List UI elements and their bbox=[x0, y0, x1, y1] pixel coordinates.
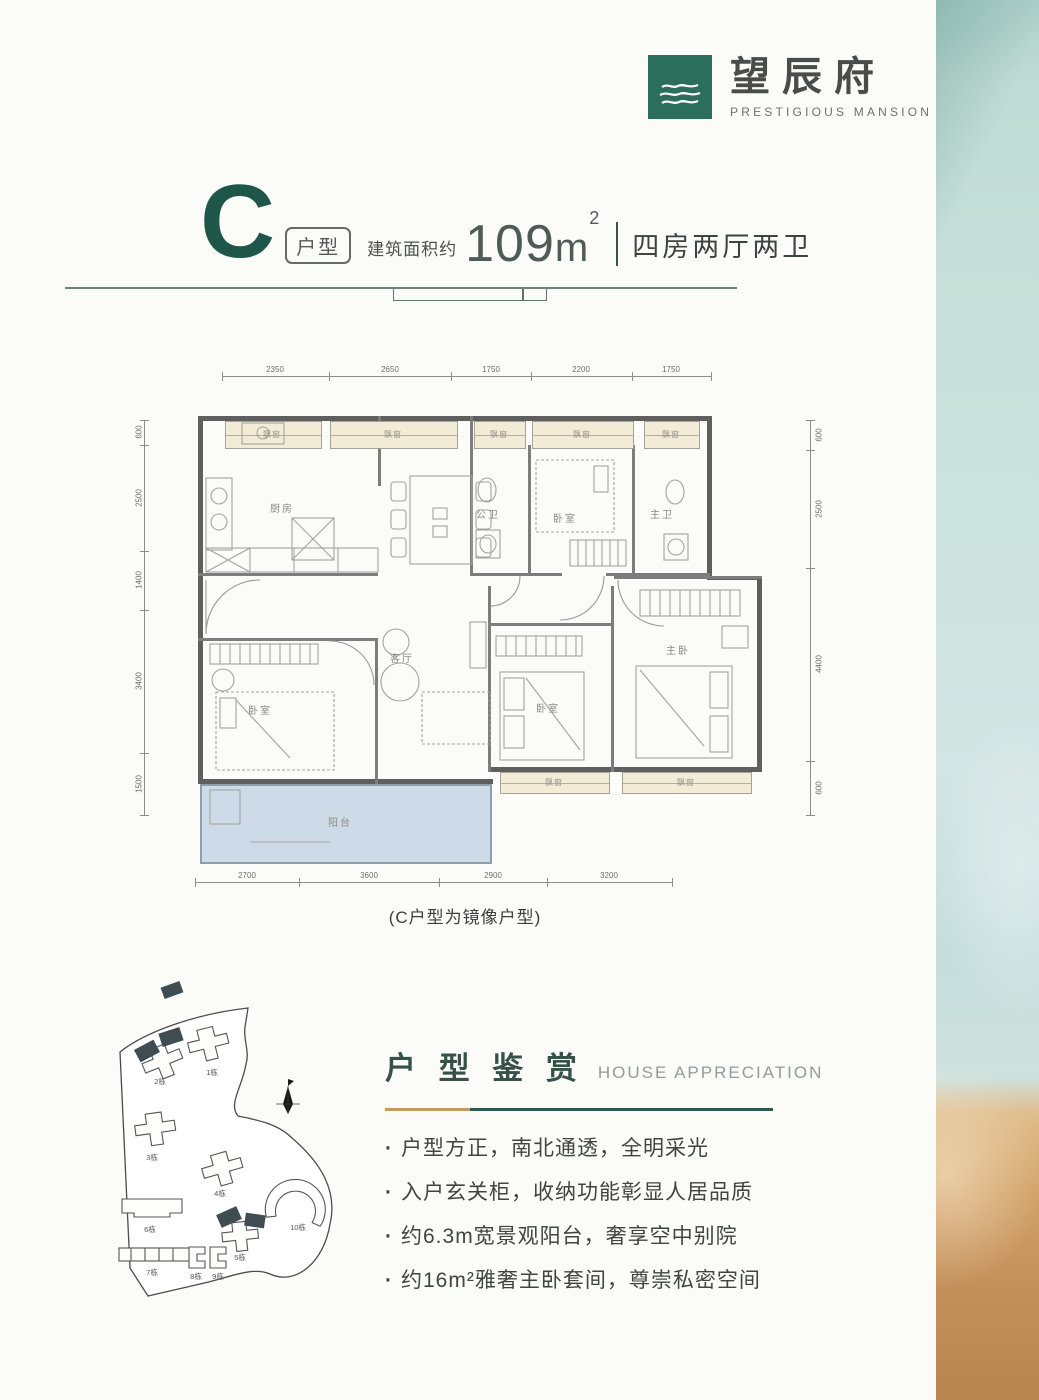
decorative-watercolor-band bbox=[936, 0, 1039, 1400]
building-label: 3栋 bbox=[146, 1152, 158, 1162]
dim-value: 600 bbox=[815, 781, 824, 794]
selling-point: 约16m²雅奢主卧套间，尊崇私密空间 bbox=[385, 1259, 855, 1303]
brand-logo: 望辰府 PRESTIGIOUS MANSION bbox=[648, 55, 932, 119]
dimension-line-right: 600 2500 4400 600 bbox=[810, 420, 811, 816]
room-count-label: 四房两厅两卫 bbox=[632, 225, 812, 264]
plan-caption: (C户型为镜像户型) bbox=[130, 903, 800, 928]
north-compass-icon bbox=[276, 1079, 300, 1114]
bay-window-label: 飘窗 bbox=[384, 429, 402, 440]
dimension-line-left: 600 2500 1400 3400 1500 bbox=[144, 420, 145, 816]
building-label: 5栋 bbox=[234, 1252, 246, 1262]
area-unit: m bbox=[555, 226, 589, 270]
brand-name-cn: 望辰府 bbox=[730, 55, 932, 99]
bay-window-label: 飘窗 bbox=[545, 777, 563, 788]
area-number: 109m2 bbox=[465, 222, 600, 268]
building-label: 7栋 bbox=[146, 1267, 158, 1277]
selling-point: 入户玄关柜，收纳功能彰显人居品质 bbox=[385, 1171, 855, 1215]
dim-value: 3400 bbox=[135, 672, 144, 690]
brochure-page: { "logo": { "cn": "望辰府", "en": "PRESTIGI… bbox=[0, 0, 1039, 1400]
appreciation-title-cn: 户 型 鉴 赏 bbox=[385, 1052, 584, 1086]
dim-value: 2350 bbox=[266, 365, 284, 374]
dim-value: 2700 bbox=[238, 871, 256, 880]
room-label-bedroom: 卧室 bbox=[536, 700, 560, 715]
room-label-public-bath: 公卫 bbox=[476, 506, 500, 521]
dimension-line-bottom: 2700 3600 2900 3200 bbox=[195, 882, 673, 883]
underline-gold-segment bbox=[385, 1108, 470, 1111]
title-underline-notch bbox=[523, 289, 547, 301]
unit-letter: C bbox=[200, 176, 275, 268]
furniture-layer bbox=[170, 390, 840, 890]
dim-value: 3200 bbox=[600, 871, 618, 880]
area-exponent: 2 bbox=[589, 208, 600, 228]
dim-value: 1500 bbox=[135, 775, 144, 793]
building-label: 8栋 bbox=[190, 1271, 202, 1281]
title-divider bbox=[616, 222, 618, 266]
dim-value: 600 bbox=[135, 425, 144, 438]
bay-window-label: 飘窗 bbox=[263, 429, 281, 440]
house-appreciation-section: 户 型 鉴 赏 HOUSE APPRECIATION 户型方正，南北通透，全明采… bbox=[385, 1052, 855, 1303]
bay-window-label: 飘窗 bbox=[490, 429, 508, 440]
bay-window-label: 飘窗 bbox=[573, 429, 591, 440]
brand-waves-icon bbox=[648, 55, 712, 119]
dim-value: 600 bbox=[815, 428, 824, 441]
building-label: 9栋 bbox=[212, 1271, 224, 1281]
dim-value: 2500 bbox=[815, 500, 824, 518]
room-label-kitchen: 厨房 bbox=[270, 500, 294, 515]
bay-window-label: 飘窗 bbox=[677, 777, 695, 788]
dim-value: 2200 bbox=[572, 365, 590, 374]
brand-name-en: PRESTIGIOUS MANSION bbox=[730, 105, 932, 119]
room-label-bedroom: 卧室 bbox=[553, 510, 577, 525]
brand-name: 望辰府 PRESTIGIOUS MANSION bbox=[730, 55, 932, 119]
room-label-master-bedroom: 主卧 bbox=[666, 642, 690, 657]
appreciation-underline bbox=[385, 1108, 773, 1111]
area-label: 建筑面积约 bbox=[367, 235, 457, 260]
unit-title: C 户型 建筑面积约 109m2 四房两厅两卫 bbox=[200, 168, 812, 268]
dim-value: 1400 bbox=[135, 571, 144, 589]
dim-value: 2650 bbox=[381, 365, 399, 374]
floor-plan: 厨房 公卫 卧室 主卫 卧室 客厅 卧室 主卧 阳台 飘窗 飘窗 飘窗 飘窗 飘… bbox=[170, 390, 840, 890]
appreciation-title-en: HOUSE APPRECIATION bbox=[598, 1063, 824, 1083]
dim-value: 1750 bbox=[662, 365, 680, 374]
dim-value: 1750 bbox=[482, 365, 500, 374]
dimension-line-top: 2350 2650 1750 2200 1750 bbox=[222, 376, 712, 377]
building-label: 1栋 bbox=[206, 1067, 218, 1077]
room-label-master-bath: 主卫 bbox=[650, 506, 674, 521]
unit-type-tag: 户型 bbox=[285, 227, 351, 264]
room-label-living: 客厅 bbox=[390, 650, 414, 665]
building-label: 6栋 bbox=[144, 1224, 156, 1234]
dim-value: 4400 bbox=[815, 655, 824, 673]
dim-value: 2900 bbox=[484, 871, 502, 880]
room-label-bedroom: 卧室 bbox=[248, 702, 272, 717]
dim-value: 3600 bbox=[360, 871, 378, 880]
bay-window-label: 飘窗 bbox=[662, 429, 680, 440]
underline-teal-segment bbox=[470, 1108, 773, 1111]
dim-value: 2500 bbox=[135, 489, 144, 507]
room-label-balcony: 阳台 bbox=[328, 814, 352, 829]
building-label: 4栋 bbox=[214, 1188, 226, 1198]
building-label: 10栋 bbox=[290, 1222, 306, 1232]
selling-point: 约6.3m宽景观阳台，奢享空中别院 bbox=[385, 1215, 855, 1259]
selling-point: 户型方正，南北通透，全明采光 bbox=[385, 1127, 855, 1171]
title-underline-notch bbox=[393, 289, 523, 301]
selling-points-list: 户型方正，南北通透，全明采光 入户玄关柜，收纳功能彰显人居品质 约6.3m宽景观… bbox=[385, 1127, 855, 1303]
site-map: 1栋 2栋 3栋 4栋 5栋 6栋 7栋 8栋 9栋 10栋 bbox=[100, 972, 365, 1327]
building-label: 2栋 bbox=[154, 1076, 166, 1086]
